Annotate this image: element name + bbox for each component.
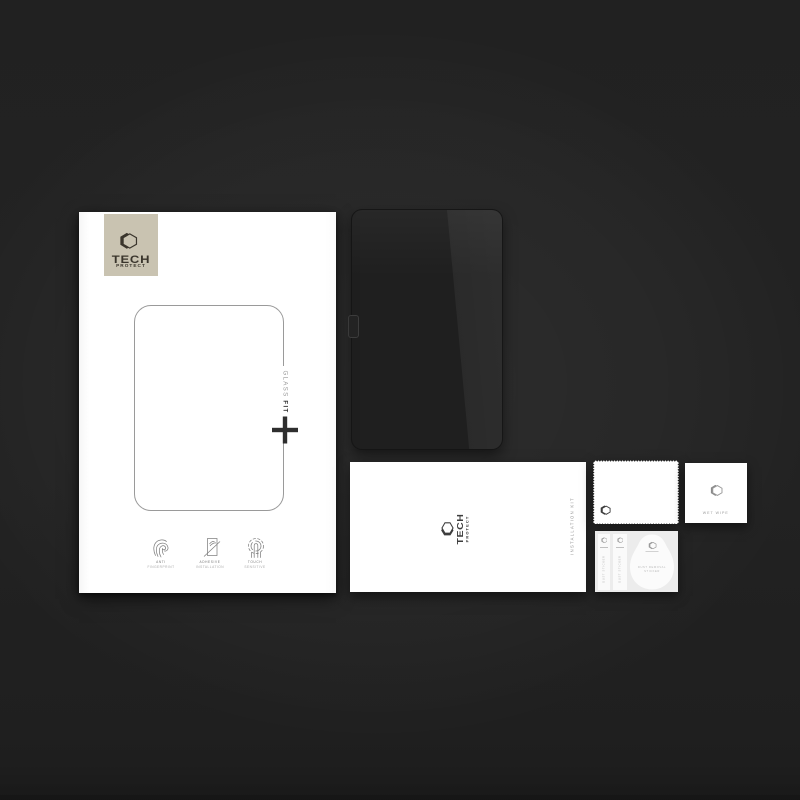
svg-text:DUST REMOVAL: DUST REMOVAL: [638, 565, 666, 569]
svg-text:STICKER: STICKER: [644, 569, 660, 573]
